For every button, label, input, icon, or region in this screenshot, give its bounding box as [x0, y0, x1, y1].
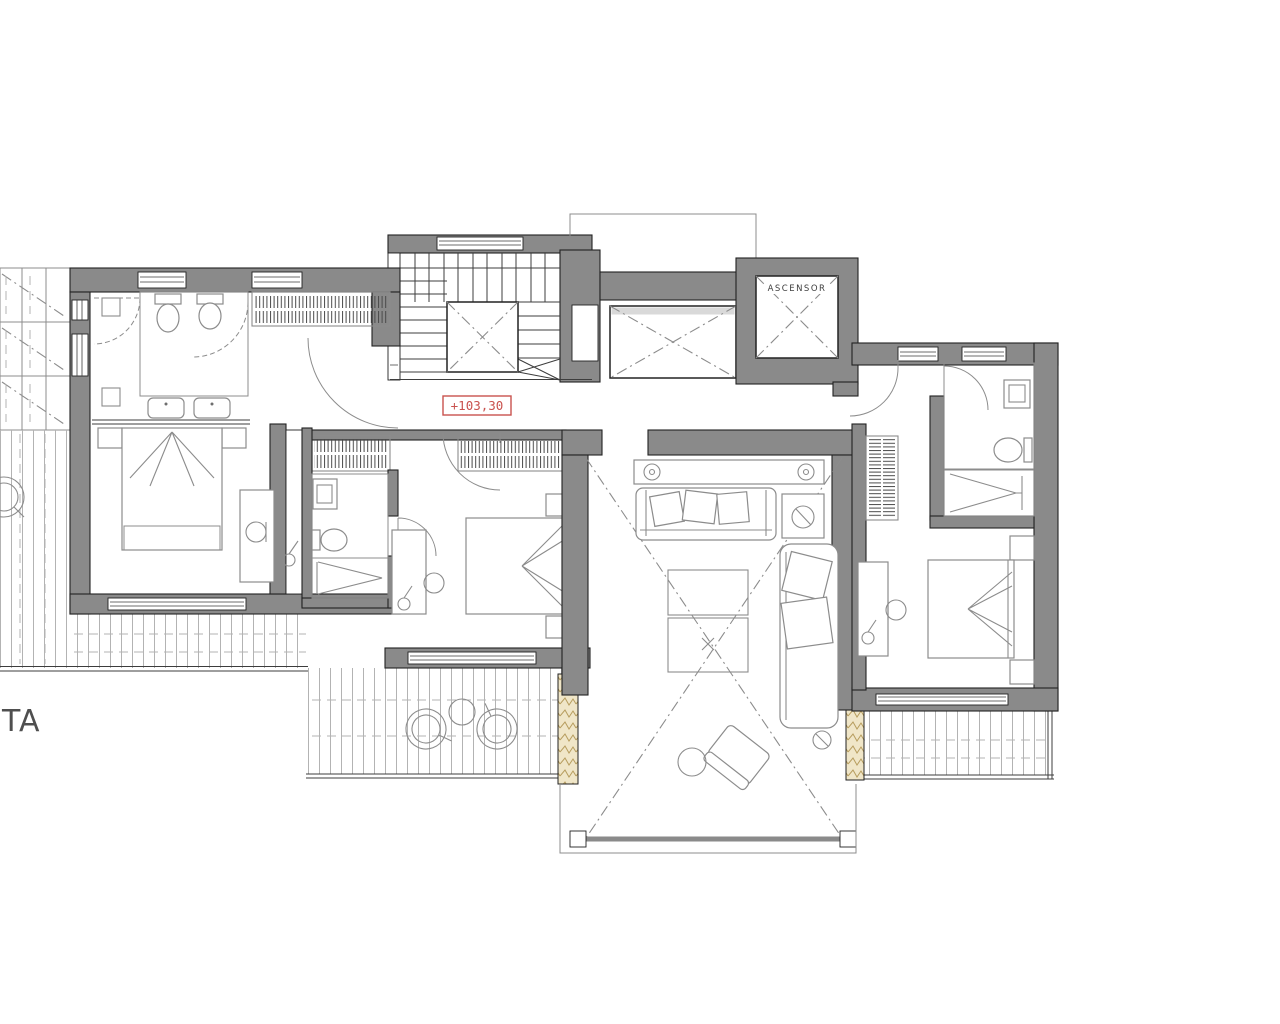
elevator-label: ASCENSOR: [768, 284, 827, 294]
nightstand: [98, 428, 122, 448]
nightstand: [222, 428, 246, 448]
master-bathroom: [92, 292, 390, 424]
terrace-right: [850, 711, 1054, 779]
coffee-table: [668, 570, 748, 615]
elevation-label: +103,30: [443, 396, 511, 415]
round-table: [678, 748, 706, 776]
glazed-front: [560, 784, 856, 853]
nightstand: [1010, 660, 1034, 684]
shower: [944, 470, 1034, 516]
nightstand: [1010, 536, 1034, 560]
side-table: [782, 494, 824, 538]
floor-plan: ASCENSOR: [0, 0, 1280, 1024]
bed: [466, 518, 568, 614]
vanity-sinks: [92, 398, 250, 424]
toilet: [312, 529, 347, 551]
desk-chair: [886, 600, 906, 620]
stone-pillar: [846, 710, 864, 780]
plan-title-partial: TA: [1, 704, 41, 739]
bed: [928, 560, 1014, 658]
bed: [122, 428, 222, 550]
duct-shaft: [286, 430, 304, 594]
wardrobe: [252, 292, 390, 326]
shower-head: [102, 298, 120, 316]
sideboard: [634, 460, 824, 484]
sink: [148, 398, 184, 418]
floor-lamp: [813, 731, 831, 749]
chaise-longue: [780, 544, 838, 728]
door-swing: [944, 366, 988, 410]
pergola-louvres: [0, 268, 70, 430]
shower-head: [102, 388, 120, 406]
wardrobe: [312, 435, 390, 471]
floor-plan-sheet: ASCENSOR: [0, 0, 1280, 1024]
door-swing: [308, 338, 398, 428]
sink: [313, 479, 337, 509]
elevation-value: +103,30: [451, 398, 504, 413]
sofa: [636, 488, 776, 540]
staircase: [388, 235, 600, 382]
bedroom-2: [385, 433, 590, 668]
shower: [312, 558, 388, 598]
bedroom-3: [850, 343, 1058, 711]
sink: [1004, 380, 1030, 408]
wardrobe: [866, 436, 898, 520]
terrace-front: [306, 668, 566, 778]
elevator: ASCENSOR: [736, 258, 858, 396]
desk: [240, 490, 274, 582]
bathroom-3: [930, 363, 1034, 528]
coffee-table: [668, 618, 748, 672]
toilet: [994, 438, 1032, 462]
living-room: [560, 430, 856, 853]
desk-chair: [424, 573, 444, 593]
hall-closets: [304, 430, 568, 471]
shaft-niche: [572, 305, 598, 361]
shower-tiles: [140, 292, 248, 396]
toilet: [155, 294, 181, 332]
bidet: [197, 294, 223, 329]
armchair: [702, 724, 771, 791]
wardrobe: [458, 437, 568, 471]
sink: [194, 398, 230, 418]
balcony-edge: [560, 784, 856, 853]
